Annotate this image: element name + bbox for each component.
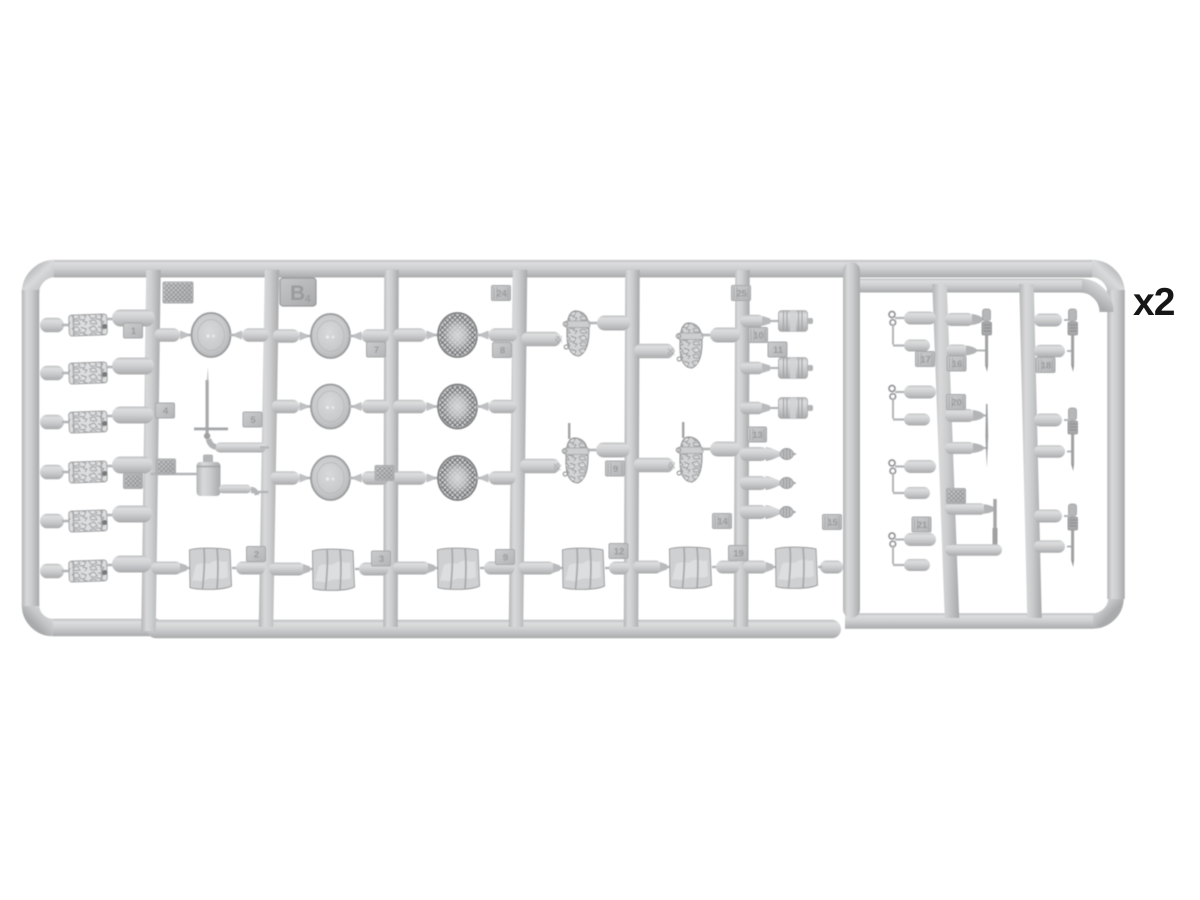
svg-text:14: 14 [717, 516, 728, 527]
svg-text:24: 24 [496, 288, 507, 299]
svg-text:18: 18 [1041, 360, 1052, 371]
svg-text:B: B [290, 282, 305, 305]
svg-text:7: 7 [374, 345, 379, 356]
svg-text:20: 20 [951, 397, 962, 408]
svg-text:21: 21 [917, 520, 928, 531]
svg-text:16: 16 [952, 359, 963, 370]
svg-text:9: 9 [613, 464, 618, 475]
svg-text:8: 8 [500, 345, 505, 356]
svg-text:17: 17 [920, 354, 931, 365]
svg-text:15: 15 [827, 517, 838, 528]
svg-text:10: 10 [753, 330, 764, 341]
svg-text:1: 1 [131, 326, 137, 337]
svg-text:25: 25 [736, 288, 747, 299]
svg-text:13: 13 [752, 430, 763, 441]
svg-text:5: 5 [250, 415, 256, 426]
svg-text:3: 3 [379, 554, 384, 565]
svg-text:12: 12 [614, 546, 625, 557]
svg-text:19: 19 [733, 548, 744, 559]
svg-text:x2: x2 [1133, 281, 1175, 324]
svg-text:4: 4 [163, 406, 169, 417]
svg-text:2: 2 [254, 549, 259, 560]
svg-text:11: 11 [773, 345, 784, 356]
svg-text:4: 4 [305, 294, 311, 305]
svg-text:9: 9 [503, 552, 508, 563]
